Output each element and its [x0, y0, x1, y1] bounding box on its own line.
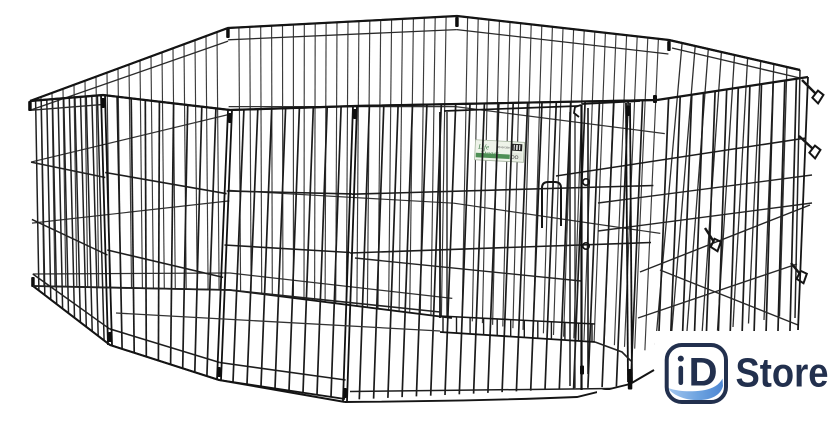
svg-text:D: D — [689, 350, 718, 394]
svg-text:Store: Store — [736, 350, 829, 396]
